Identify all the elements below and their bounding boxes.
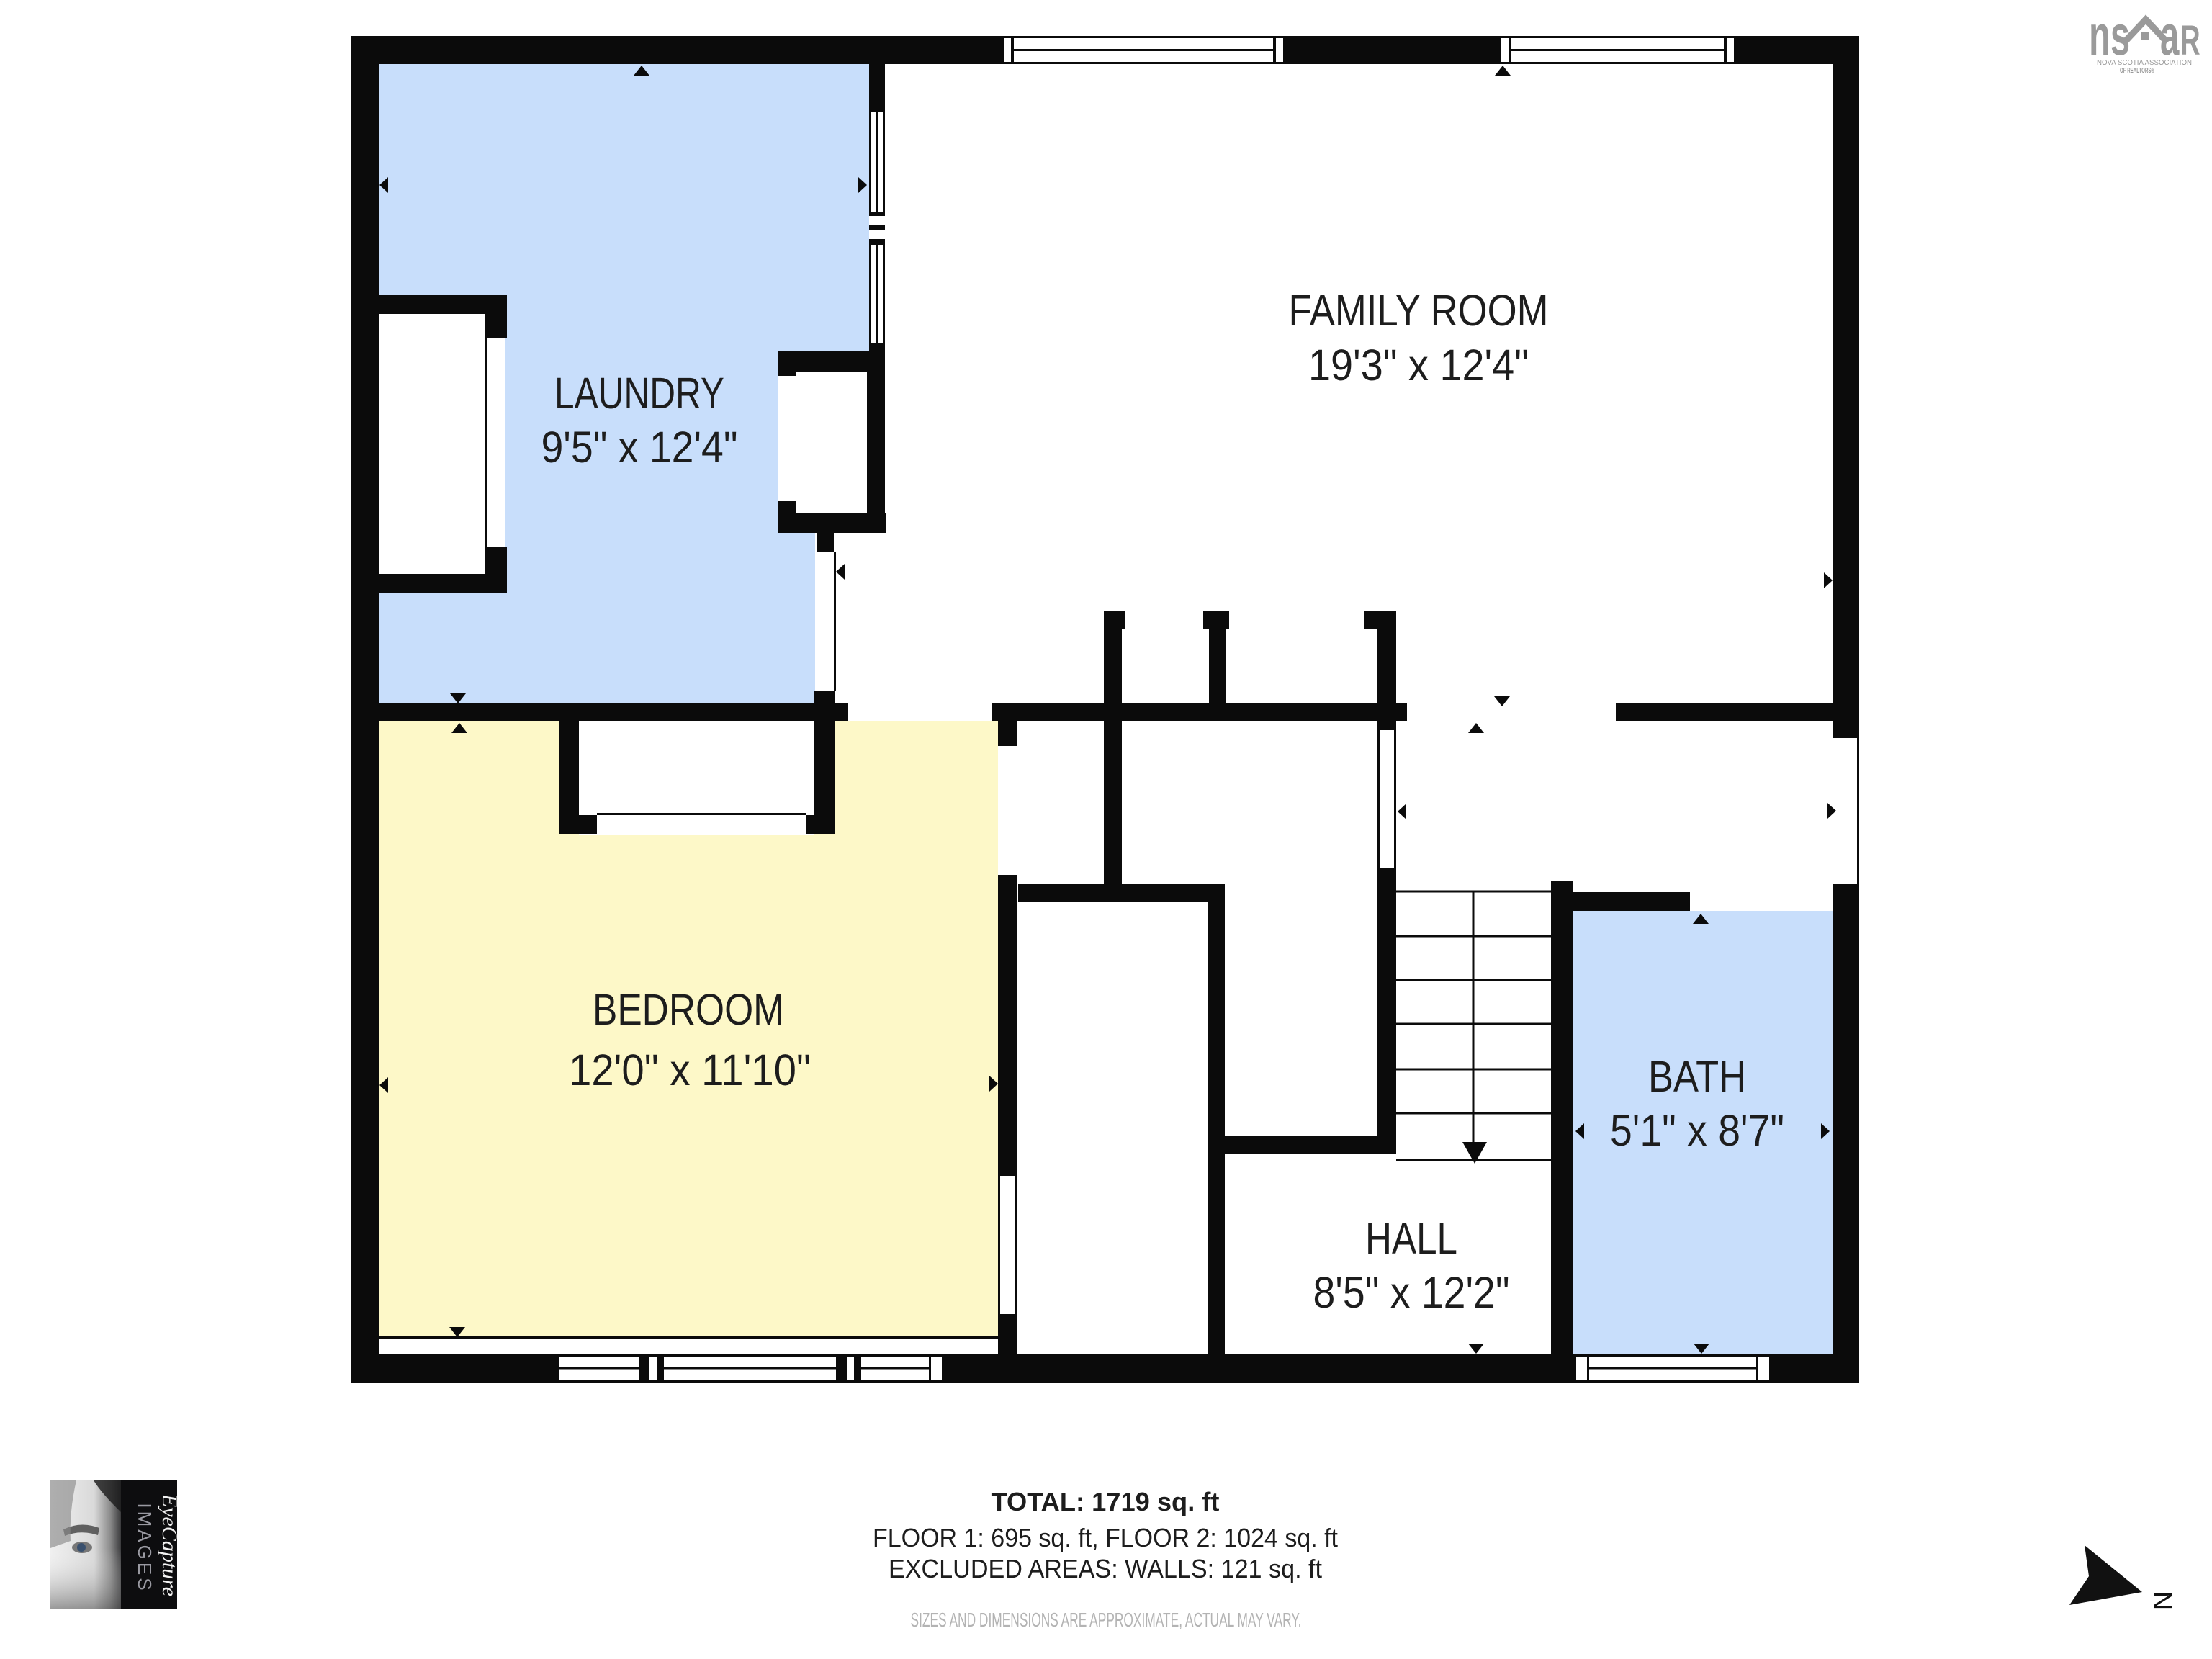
svg-text:NOVA SCOTIA ASSOCIATION: NOVA SCOTIA ASSOCIATION <box>2097 59 2192 67</box>
svg-text:OF REALTORS®: OF REALTORS® <box>2120 67 2154 75</box>
svg-text:12'0" x 11'10": 12'0" x 11'10" <box>569 1046 811 1094</box>
svg-text:EXCLUDED AREAS: WALLS: 121 sq.: EXCLUDED AREAS: WALLS: 121 sq. ft <box>889 1554 1322 1583</box>
svg-text:FAMILY ROOM: FAMILY ROOM <box>1289 286 1549 335</box>
svg-text:BEDROOM: BEDROOM <box>593 985 784 1034</box>
svg-text:LAUNDRY: LAUNDRY <box>554 369 724 418</box>
svg-text:FLOOR 1: 695 sq. ft, FLOOR 2:: FLOOR 1: 695 sq. ft, FLOOR 2: 1024 sq. f… <box>873 1523 1338 1552</box>
svg-text:ns: ns <box>2089 4 2130 67</box>
svg-text:EyeCapture: EyeCapture <box>158 1493 181 1596</box>
svg-text:BATH: BATH <box>1648 1052 1746 1101</box>
svg-text:8'5" x 12'2": 8'5" x 12'2" <box>1313 1268 1510 1317</box>
svg-text:R: R <box>2180 18 2200 64</box>
svg-text:a: a <box>2160 3 2180 67</box>
svg-text:IMAGES: IMAGES <box>134 1503 156 1593</box>
svg-text:HALL: HALL <box>1365 1214 1457 1263</box>
svg-text:9'5" x 12'4": 9'5" x 12'4" <box>541 423 738 472</box>
svg-text:19'3" x 12'4": 19'3" x 12'4" <box>1308 341 1529 390</box>
svg-text:TOTAL: 1719 sq. ft: TOTAL: 1719 sq. ft <box>992 1487 1220 1516</box>
svg-text:5'1" x 8'7": 5'1" x 8'7" <box>1610 1106 1784 1155</box>
svg-text:N: N <box>2148 1591 2177 1610</box>
svg-text:SIZES AND DIMENSIONS ARE APPRO: SIZES AND DIMENSIONS ARE APPROXIMATE, AC… <box>911 1609 1302 1631</box>
